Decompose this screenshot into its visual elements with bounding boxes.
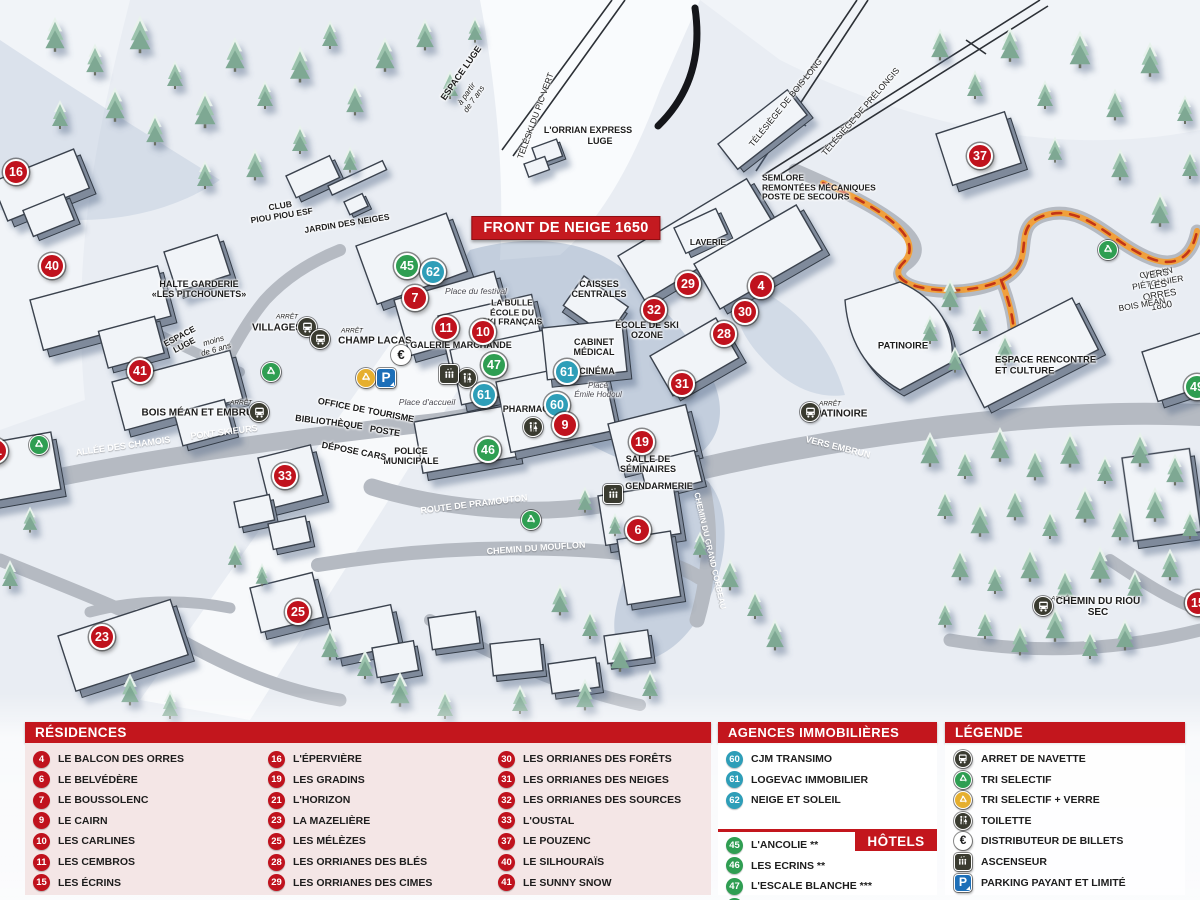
hotel-item-badge-47: 47: [726, 878, 743, 895]
legend-item-label: TRI SELECTIF: [981, 774, 1052, 786]
residence-item-7: 7LE BOUSSOLENC: [33, 791, 148, 809]
elevator-icon: [954, 853, 972, 871]
legend-item-label: TOILETTE: [981, 815, 1032, 827]
map-marker-32[interactable]: 32: [641, 297, 667, 323]
legend-item-label: PARKING PAYANT ET LIMITÉ: [981, 877, 1126, 889]
legend-item-label: ARRET DE NAVETTE: [981, 753, 1086, 765]
residence-item-label: LES ORRIANES DES FORÊTS: [523, 753, 672, 765]
map-marker-28[interactable]: 28: [711, 321, 737, 347]
panel-legende-header: LÉGENDE: [945, 722, 1185, 743]
map-icon-bus: [249, 402, 269, 422]
map-label-36: POLICE MUNICIPALE: [383, 446, 438, 466]
map-marker-9[interactable]: 9: [552, 412, 578, 438]
agence-item-60: 60CJM TRANSIMO: [726, 750, 832, 768]
parking-icon: P: [376, 368, 396, 388]
bus-icon: [1033, 596, 1053, 616]
map-label-27: PATINOIRE: [878, 342, 928, 353]
map-label-14: VILLAGES: [252, 322, 302, 333]
map-label-13: ARRÊT: [276, 313, 298, 320]
residence-item-6: 6LE BELVÉDÈRE: [33, 771, 138, 789]
map-label-4: LUGE: [587, 136, 612, 146]
agence-item-label: CJM TRANSIMO: [751, 753, 832, 765]
hotel-item-label: L'ANCOLIE **: [751, 839, 818, 851]
residence-item-label: LE SUNNY SNOW: [523, 877, 611, 889]
residence-item-label: L'OUSTAL: [523, 815, 574, 827]
map-marker-41[interactable]: 41: [127, 358, 153, 384]
map-marker-11[interactable]: 11: [433, 315, 459, 341]
panel-residences-header: RÉSIDENCES: [25, 722, 711, 743]
elevator-icon: [439, 364, 459, 384]
map-label-23: Place Émile Hodoul: [574, 382, 622, 400]
bus-icon: [249, 402, 269, 422]
map-marker-29[interactable]: 29: [675, 271, 701, 297]
residence-item-badge-10: 10: [33, 833, 50, 850]
map-marker-47[interactable]: 47: [481, 352, 507, 378]
map-icon-recycle-green: [29, 435, 49, 455]
panel-hotels-header: HÔTELS: [855, 832, 937, 851]
map-marker-45[interactable]: 45: [394, 253, 420, 279]
residence-item-label: LES CARLINES: [58, 835, 135, 847]
bus-icon: [954, 750, 972, 768]
residence-item-label: L'HORIZON: [293, 794, 350, 806]
elevator-icon: [603, 484, 623, 504]
recycle-green-icon: [1098, 240, 1118, 260]
residence-item-badge-15: 15: [33, 874, 50, 891]
euro-icon: €: [954, 832, 972, 850]
map-label-32: SALLE DE SÉMINAIRES: [620, 454, 676, 474]
panel-agences-body: HÔTELS 60CJM TRANSIMO61LOGEVAC IMMOBILIE…: [718, 743, 937, 895]
map-label-33: GENDARMERIE: [625, 481, 693, 491]
legend-item-euro: €DISTRIBUTEUR DE BILLETS: [953, 832, 1123, 850]
agence-item-62: 62NEIGE ET SOLEIL: [726, 791, 841, 809]
residence-item-badge-31: 31: [498, 771, 515, 788]
residence-item-31: 31LES ORRIANES DES NEIGES: [498, 771, 669, 789]
map-marker-37[interactable]: 37: [967, 143, 993, 169]
panel-agences: AGENCES IMMOBILIÈRES HÔTELS 60CJM TRANSI…: [718, 722, 937, 895]
residence-item-15: 15LES ÉCRINS: [33, 874, 121, 892]
map-marker-7[interactable]: 7: [402, 285, 428, 311]
residence-item-23: 23LA MAZELIÈRE: [268, 812, 370, 830]
residence-item-badge-9: 9: [33, 812, 50, 829]
residence-item-label: L'ÉPERVIÈRE: [293, 753, 362, 765]
residence-item-badge-21: 21: [268, 792, 285, 809]
residence-item-label: LE BELVÉDÈRE: [58, 774, 138, 786]
residence-item-33: 33L'OUSTAL: [498, 812, 574, 830]
map-label-19: Place du festival: [445, 287, 507, 297]
map-marker-31[interactable]: 31: [669, 371, 695, 397]
residence-item-label: LES ORRIANES DES SOURCES: [523, 794, 681, 806]
residence-item-9: 9LE CAIRN: [33, 812, 108, 830]
residence-item-label: LES ORRIANES DES CIMES: [293, 877, 432, 889]
map-label-3: L'ORRIAN EXPRESS: [544, 125, 632, 135]
map-label-20: CAISSES CENTRALES: [571, 279, 626, 299]
map-marker-6[interactable]: 6: [625, 517, 651, 543]
hotel-item-47: 47L'ESCALE BLANCHE ***: [726, 877, 872, 895]
map-marker-40[interactable]: 40: [39, 253, 65, 279]
residence-item-41: 41LE SUNNY SNOW: [498, 874, 611, 892]
residence-item-badge-6: 6: [33, 771, 50, 788]
map-label-21: CABINET MÉDICAL: [574, 337, 615, 357]
residence-item-badge-29: 29: [268, 874, 285, 891]
map-marker-23[interactable]: 23: [89, 624, 115, 650]
parking-icon: P: [954, 874, 972, 892]
map-icon-recycle-yellow: [356, 368, 376, 388]
panel-agences-header: AGENCES IMMOBILIÈRES: [718, 722, 937, 743]
hotel-item-46: 46LES ECRINS **: [726, 857, 825, 875]
map-marker-19[interactable]: 19: [629, 429, 655, 455]
panel-legende: LÉGENDE ARRET DE NAVETTETRI SELECTIFTRI …: [945, 722, 1185, 895]
legend-item-recycle-yellow: TRI SELECTIF + VERRE: [953, 791, 1100, 809]
map-marker-10[interactable]: 10: [470, 319, 496, 345]
map-marker-33[interactable]: 33: [272, 463, 298, 489]
map-label-26: LAVERIE: [690, 238, 726, 248]
map-label-25: ÉCOLE DE SKI OZONE: [615, 320, 679, 340]
residence-item-label: LE SILHOURAÏS: [523, 856, 604, 868]
legend-item-label: DISTRIBUTEUR DE BILLETS: [981, 835, 1123, 847]
toilet-icon: [954, 812, 972, 830]
recycle-green-icon: [29, 435, 49, 455]
residence-item-32: 32LES ORRIANES DES SOURCES: [498, 791, 681, 809]
residence-item-4: 4LE BALCON DES ORRES: [33, 750, 184, 768]
legend-item-parking: PPARKING PAYANT ET LIMITÉ: [953, 874, 1126, 892]
map-label-28: ARRÊT: [819, 400, 841, 407]
residence-item-badge-16: 16: [268, 751, 285, 768]
residence-item-label: LES ORRIANES DES NEIGES: [523, 774, 669, 786]
residence-item-25: 25LES MÉLÈZES: [268, 832, 366, 850]
residence-item-label: LES MÉLÈZES: [293, 835, 366, 847]
residence-item-label: LE CAIRN: [58, 815, 108, 827]
agence-item-61: 61LOGEVAC IMMOBILIER: [726, 771, 868, 789]
residence-item-19: 19LES GRADINS: [268, 771, 365, 789]
map-label-15: ARRÊT: [341, 327, 363, 334]
recycle-green-icon: [954, 771, 972, 789]
residence-item-10: 10LES CARLINES: [33, 832, 135, 850]
bus-icon: [800, 402, 820, 422]
panel-residences-body: 4LE BALCON DES ORRES6LE BELVÉDÈRE7LE BOU…: [25, 743, 711, 895]
recycle-yellow-icon: [954, 791, 972, 809]
residence-item-badge-7: 7: [33, 792, 50, 809]
hotel-item-45: 45L'ANCOLIE **: [726, 836, 818, 854]
panel-residences: RÉSIDENCES 4LE BALCON DES ORRES6LE BELVÉ…: [25, 722, 711, 895]
agence-item-badge-62: 62: [726, 792, 743, 809]
residence-item-label: LES GRADINS: [293, 774, 365, 786]
map-label-17: GALERIE MARCHANDE: [410, 340, 512, 350]
residence-item-label: LE POUZENC: [523, 835, 591, 847]
map-marker-61[interactable]: 61: [471, 382, 497, 408]
residence-item-badge-28: 28: [268, 854, 285, 871]
map-icon-bus: [1033, 596, 1053, 616]
hotel-item-badge-45: 45: [726, 837, 743, 854]
residence-item-label: LA MAZELIÈRE: [293, 815, 370, 827]
map-label-10: HALTE GARDERIE «LES PITCHOUNETS»: [152, 279, 247, 299]
map-icon-euro: €: [391, 345, 411, 365]
bus-icon: [310, 329, 330, 349]
legend-item-bus: ARRET DE NAVETTE: [953, 750, 1086, 768]
residence-item-37: 37LE POUZENC: [498, 832, 591, 850]
map-icon-recycle-green: [261, 362, 281, 382]
map-icon-bus: [310, 329, 330, 349]
map-label-50: ESPACE RENCONTRE ET CULTURE: [995, 355, 1096, 376]
toilet-icon: [523, 417, 543, 437]
residence-item-label: LE BOUSSOLENC: [58, 794, 148, 806]
agence-item-badge-60: 60: [726, 751, 743, 768]
map-marker-62[interactable]: 62: [420, 259, 446, 285]
legend-item-elevator: ASCENSEUR: [953, 853, 1047, 871]
residence-item-29: 29LES ORRIANES DES CIMES: [268, 874, 432, 892]
legend-item-recycle-green: TRI SELECTIF: [953, 771, 1052, 789]
residence-item-badge-30: 30: [498, 751, 515, 768]
hotel-item-label: LES ECRINS **: [751, 860, 825, 872]
residence-item-28: 28LES ORRIANES DES BLÉS: [268, 853, 427, 871]
panel-legende-body: ARRET DE NAVETTETRI SELECTIFTRI SELECTIF…: [945, 743, 1185, 895]
map-marker-16[interactable]: 16: [3, 159, 29, 185]
map-marker-25[interactable]: 25: [285, 599, 311, 625]
map-icon-elevator: [439, 364, 459, 384]
map-label-46: CHEMIN DU RIOU SEC: [1047, 596, 1149, 618]
residence-item-badge-32: 32: [498, 792, 515, 809]
agence-item-label: NEIGE ET SOLEIL: [751, 794, 841, 806]
residence-item-badge-25: 25: [268, 833, 285, 850]
map-icon-recycle-green: [521, 510, 541, 530]
residence-item-badge-37: 37: [498, 833, 515, 850]
legend-item-toilet: TOILETTE: [953, 812, 1032, 830]
agence-item-label: LOGEVAC IMMOBILIER: [751, 774, 868, 786]
residence-item-40: 40LE SILHOURAÏS: [498, 853, 604, 871]
residence-item-badge-11: 11: [33, 854, 50, 871]
hotel-item-badge-46: 46: [726, 857, 743, 874]
map-marker-61[interactable]: 61: [554, 359, 580, 385]
map-marker-30[interactable]: 30: [732, 299, 758, 325]
recycle-yellow-icon: [356, 368, 376, 388]
map-label-44: BOIS MÉAN ET EMBRUN: [142, 407, 261, 418]
recycle-green-icon: [521, 510, 541, 530]
residence-item-badge-33: 33: [498, 812, 515, 829]
legend-item-label: TRI SELECTIF + VERRE: [981, 794, 1100, 806]
residence-item-label: LE BALCON DES ORRES: [58, 753, 184, 765]
map-icon-parking: P: [376, 368, 396, 388]
residence-item-label: LES CEMBROS: [58, 856, 135, 868]
hotel-item-label: L'ESCALE BLANCHE ***: [751, 880, 872, 892]
residence-item-badge-4: 4: [33, 751, 50, 768]
residence-item-label: LES ORRIANES DES BLÉS: [293, 856, 427, 868]
residence-item-21: 21L'HORIZON: [268, 791, 350, 809]
map-marker-4[interactable]: 4: [748, 273, 774, 299]
euro-icon: €: [391, 345, 411, 365]
residence-item-badge-23: 23: [268, 812, 285, 829]
map-icon-bus: [800, 402, 820, 422]
map-label-7: SEMLORE REMONTÉES MÉCANIQUES POSTE DE SE…: [762, 174, 876, 203]
residence-item-label: LES ÉCRINS: [58, 877, 121, 889]
map-icon-toilet: [523, 417, 543, 437]
residence-item-badge-40: 40: [498, 854, 515, 871]
legend-item-label: ASCENSEUR: [981, 856, 1047, 868]
recycle-green-icon: [261, 362, 281, 382]
residence-item-badge-19: 19: [268, 771, 285, 788]
map-marker-46[interactable]: 46: [475, 437, 501, 463]
map-label-51: Place d'accueil: [399, 398, 455, 408]
map-icon-recycle-green: [1098, 240, 1118, 260]
map-label-22: CINÉMA: [579, 366, 615, 376]
agence-item-badge-61: 61: [726, 771, 743, 788]
residence-item-30: 30LES ORRIANES DES FORÊTS: [498, 750, 672, 768]
map-label-29: PATINOIRE: [815, 408, 868, 419]
front-de-neige-banner: FRONT DE NEIGE 1650: [471, 216, 660, 240]
residence-item-11: 11LES CEMBROS: [33, 853, 135, 871]
map-icon-elevator: [603, 484, 623, 504]
residence-item-16: 16L'ÉPERVIÈRE: [268, 750, 362, 768]
residence-item-badge-41: 41: [498, 874, 515, 891]
resort-map-stage: 1640412133232574562111047616160946196293…: [0, 0, 1200, 900]
